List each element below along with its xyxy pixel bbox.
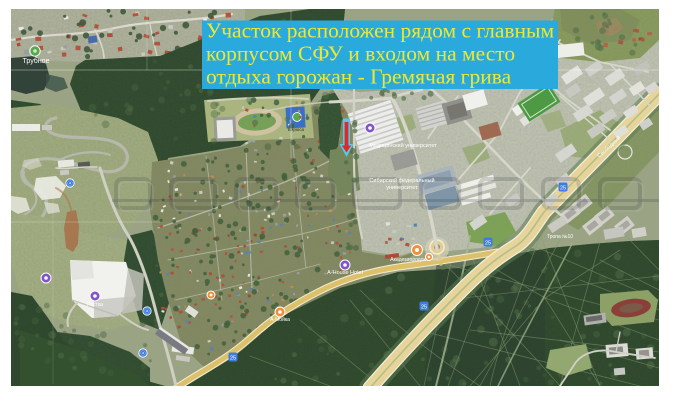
svg-text:Ростка: Ростка <box>87 302 103 308</box>
svg-text:Участок расположен рядом с гла: Участок расположен рядом с главным <box>206 19 554 43</box>
svg-text:А-Мойка: А-Мойка <box>270 316 290 323</box>
svg-text:25: 25 <box>485 241 491 247</box>
svg-text:Сибирский федеральный: Сибирский федеральный <box>369 177 434 184</box>
svg-text:ⓐ: ⓐ <box>140 350 145 357</box>
svg-text:корпусом СФУ и входом на место: корпусом СФУ и входом на место <box>206 42 515 66</box>
svg-text:университет: университет <box>386 185 418 191</box>
svg-text:Академгородок: Академгородок <box>390 257 426 263</box>
svg-text:A-House Hotel: A-House Hotel <box>327 270 363 276</box>
svg-text:25: 25 <box>230 356 236 362</box>
svg-text:ⓐ: ⓐ <box>144 308 149 315</box>
svg-text:25: 25 <box>421 305 427 311</box>
svg-text:Тропа №10: Тропа №10 <box>547 234 573 240</box>
svg-text:Медицинский университет: Медицинский университет <box>369 142 437 149</box>
svg-text:Трубное: Трубное <box>23 57 50 65</box>
svg-text:ⓐ: ⓐ <box>67 180 72 187</box>
svg-text:25: 25 <box>560 186 566 192</box>
svg-text:отдыха горожан - Гремячая грив: отдыха горожан - Гремячая грива <box>206 65 512 89</box>
